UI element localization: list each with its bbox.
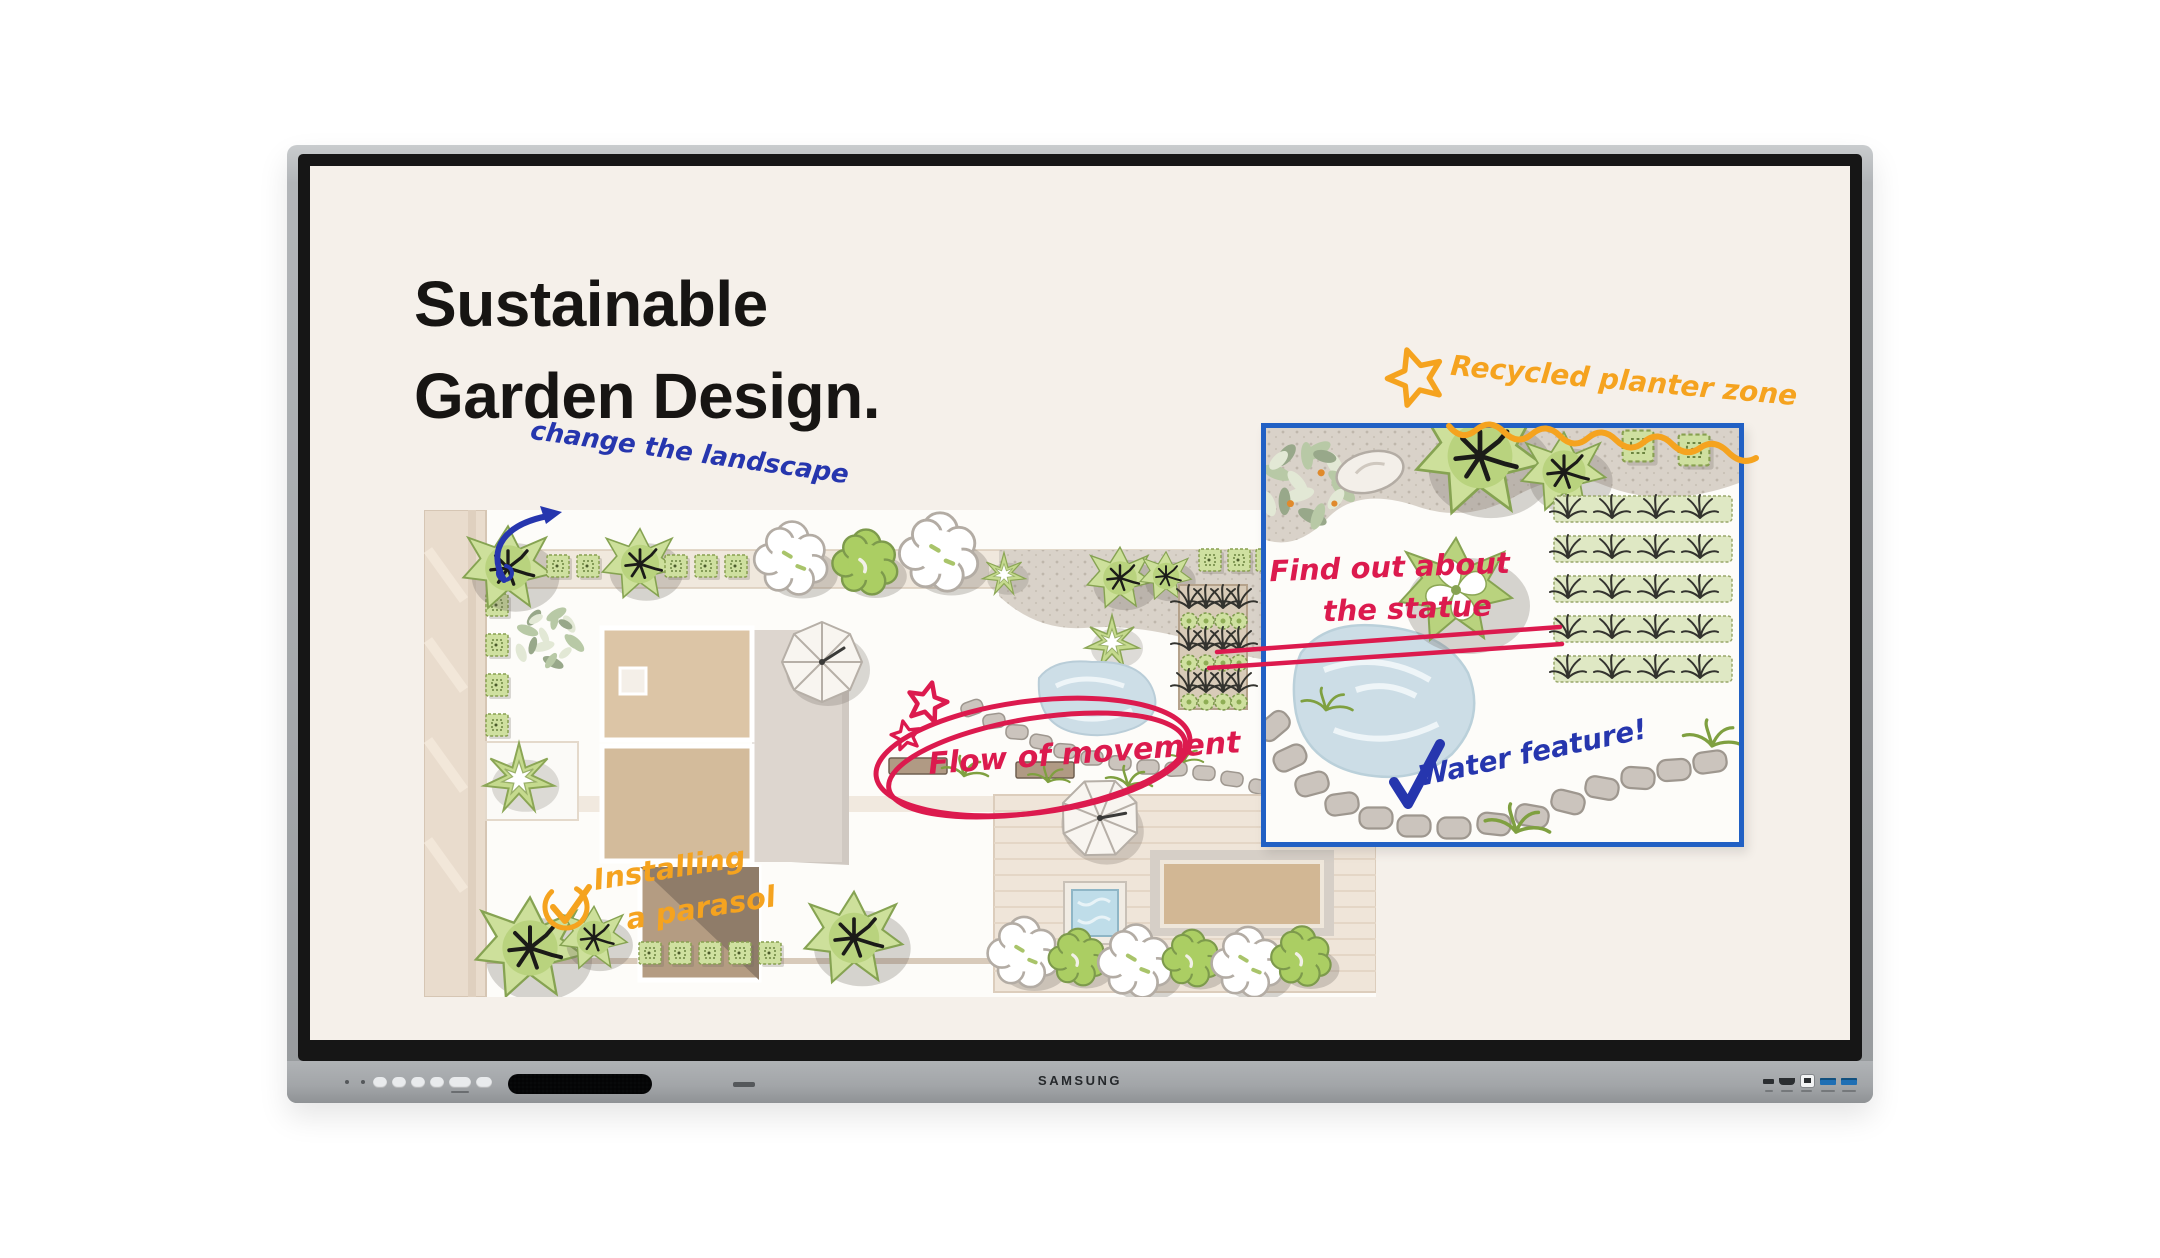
port-label-5 [1842, 1090, 1856, 1092]
status-led [361, 1080, 365, 1084]
speaker-grille [508, 1074, 652, 1094]
garden-table [1162, 862, 1322, 926]
page-title: Sustainable Garden Design. [414, 258, 880, 442]
monitor-bezel: Sustainable Garden Design. [287, 145, 1873, 1103]
annotation-find-out: Find out about the statue [1269, 542, 1512, 634]
home-button[interactable] [392, 1077, 406, 1088]
annotation-recycled-zone: Recycled planter zone [1449, 349, 1798, 412]
inset-hedge-1 [1623, 431, 1658, 466]
bottom-bezel: SAMSUNG [287, 1061, 1873, 1103]
display-screen: Sustainable Garden Design. [310, 166, 1850, 1040]
pond [1039, 661, 1156, 735]
volume-up-button[interactable] [449, 1077, 471, 1088]
zoom-inset-panel [1261, 423, 1744, 847]
samsung-logo: SAMSUNG [1038, 1073, 1122, 1088]
sensor-slot [733, 1082, 755, 1087]
usb3-port-2 [1841, 1078, 1857, 1085]
star-icon [1381, 342, 1449, 409]
power-button[interactable] [373, 1077, 387, 1088]
usb-c-port [1763, 1079, 1774, 1084]
volume-down-button[interactable] [430, 1077, 444, 1088]
port-label-1 [1765, 1090, 1773, 1092]
button-label-mark [451, 1091, 469, 1093]
port-label-3 [1801, 1090, 1812, 1092]
usb3-port-1 [1820, 1078, 1836, 1085]
ir-sensor-dot [345, 1080, 349, 1084]
product-stage: Sustainable Garden Design. [0, 0, 2160, 1258]
usb-b-touch-port [1800, 1074, 1815, 1088]
vegetable-bed [1171, 585, 1257, 710]
port-label-2 [1781, 1090, 1793, 1092]
port-label-4 [1821, 1090, 1835, 1092]
source-button[interactable] [476, 1077, 492, 1088]
inset-svg [1266, 428, 1739, 842]
page-title-line1: Sustainable [414, 258, 880, 350]
back-button[interactable] [411, 1077, 425, 1088]
hdmi-port [1779, 1078, 1795, 1085]
inset-hedge-2 [1679, 435, 1714, 470]
page-title-line2: Garden Design. [414, 350, 880, 442]
